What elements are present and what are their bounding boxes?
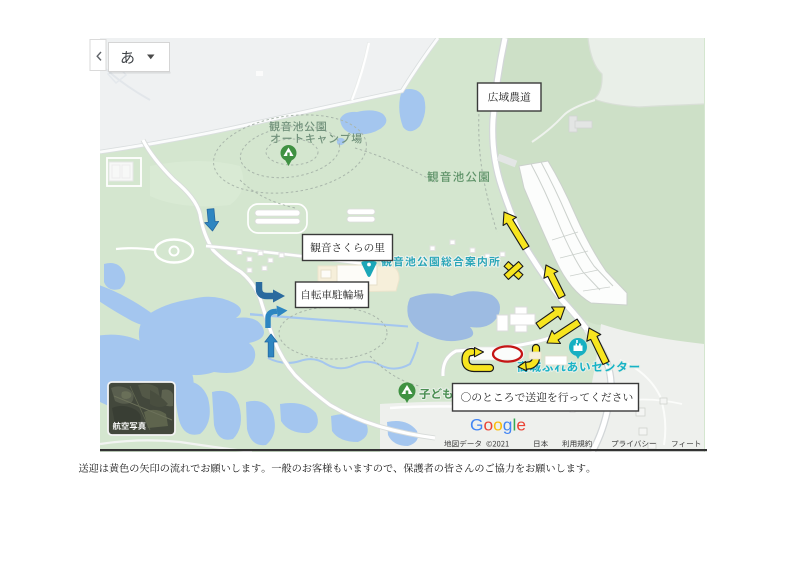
svg-text:Google: Google bbox=[470, 417, 526, 435]
